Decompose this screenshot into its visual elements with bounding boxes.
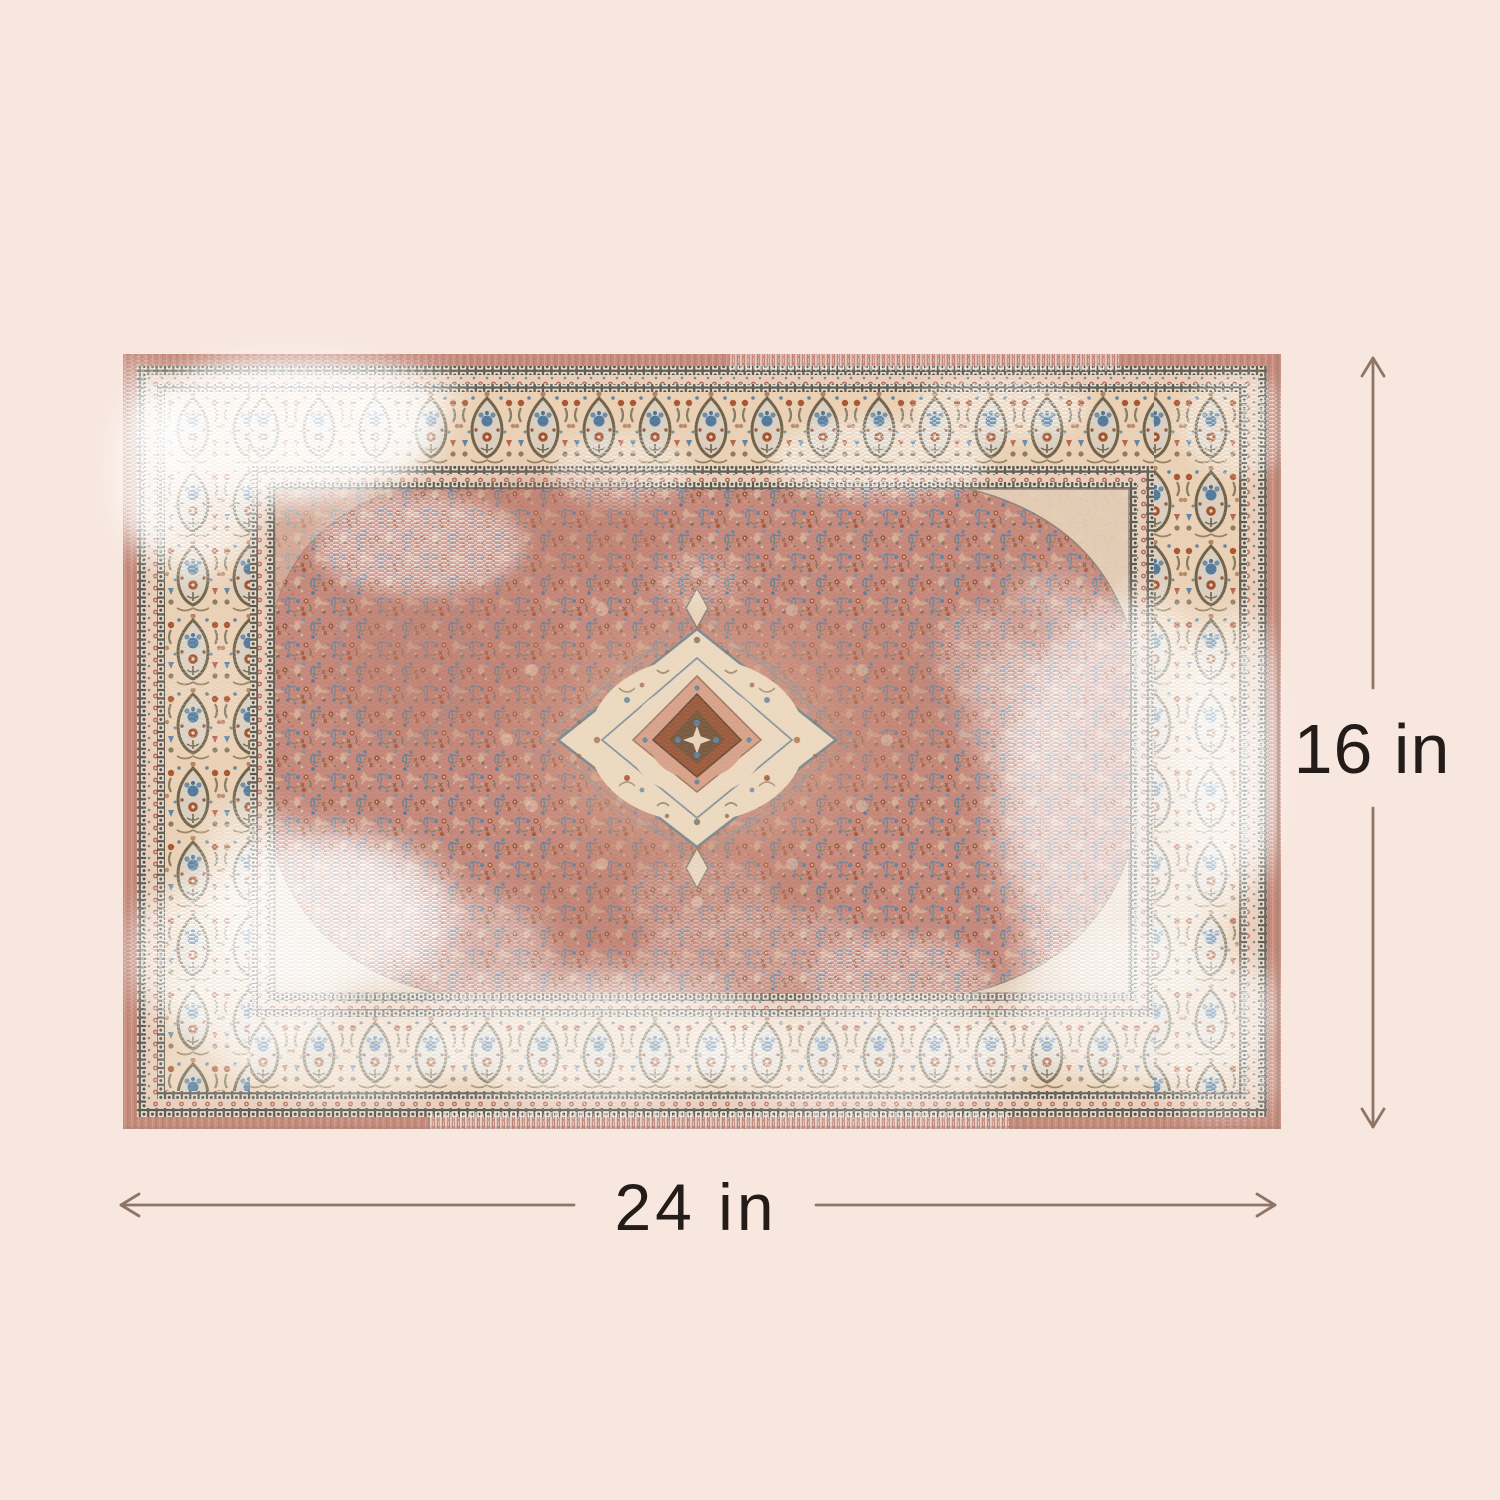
- svg-text:24 in: 24 in: [614, 1170, 777, 1244]
- svg-text:16 in: 16 in: [1294, 710, 1451, 788]
